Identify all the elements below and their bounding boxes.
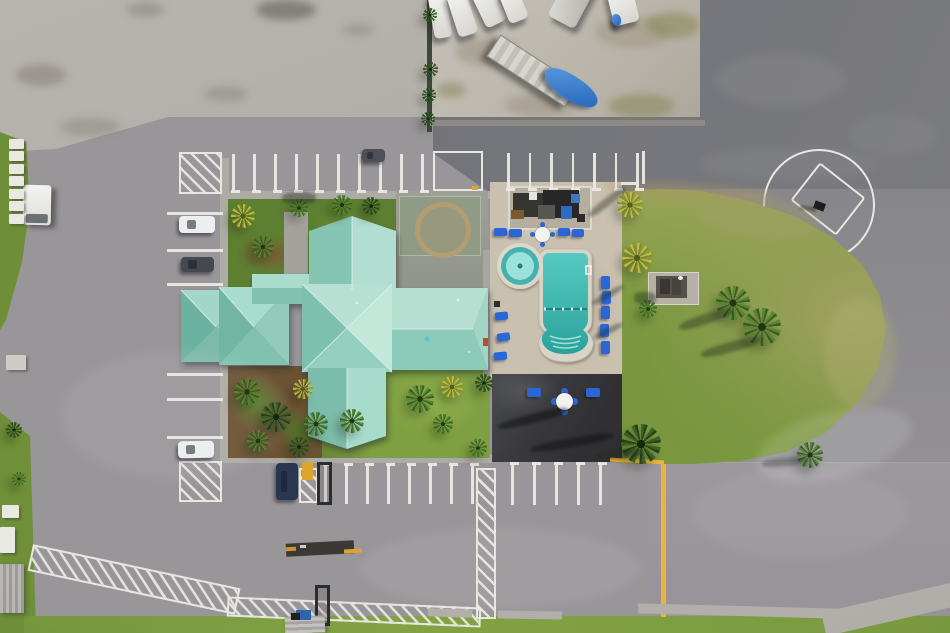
parking-line xyxy=(167,283,223,286)
palm-tree xyxy=(289,437,309,457)
palm-tree xyxy=(617,192,643,218)
parking-line xyxy=(636,153,639,190)
pavement-stain xyxy=(16,64,66,86)
parking-line xyxy=(533,463,536,505)
palm-tree xyxy=(433,414,453,434)
utility-box xyxy=(9,214,24,224)
utility-box xyxy=(9,151,24,161)
parking-line xyxy=(450,464,453,504)
stall-end-mark xyxy=(336,190,345,193)
pavement-stain xyxy=(342,24,374,36)
stall-end-mark xyxy=(399,190,408,193)
parking-line xyxy=(316,154,319,192)
white-line-marking xyxy=(642,151,645,184)
tree-shadow xyxy=(282,192,316,204)
trench-debris xyxy=(300,545,306,548)
stall-end-mark xyxy=(315,190,324,193)
stall-end-mark xyxy=(635,188,644,191)
roof-facet xyxy=(181,290,251,327)
parking-line xyxy=(511,463,514,505)
stall-end-mark xyxy=(252,190,261,193)
shrub xyxy=(12,472,26,486)
sidewalk-segment xyxy=(498,610,562,619)
parking-line xyxy=(615,153,618,190)
pavement-stain xyxy=(126,2,164,17)
palm-tree xyxy=(441,376,463,398)
roof-facet xyxy=(392,288,488,329)
hedge xyxy=(423,62,438,77)
palm-tree xyxy=(261,402,291,432)
palm-tree xyxy=(231,204,255,228)
monument-shadow xyxy=(634,292,656,304)
pool-equipment xyxy=(511,210,524,219)
parking-line xyxy=(429,464,432,504)
utility-box xyxy=(2,505,19,518)
monument-stone xyxy=(672,278,681,295)
parking-line xyxy=(577,463,580,505)
stall-end-mark xyxy=(365,463,374,466)
parking-line xyxy=(408,464,411,504)
pavement-wear xyxy=(60,350,290,480)
monument-plaque xyxy=(678,276,683,280)
roof-facet xyxy=(302,284,347,372)
parking-line xyxy=(337,154,340,192)
parking-line xyxy=(295,154,298,192)
utility-box xyxy=(9,176,24,186)
tree-shadow xyxy=(256,0,316,20)
walkway-east xyxy=(483,250,490,376)
palm-tree xyxy=(332,195,352,215)
rooftop-vent xyxy=(356,302,358,304)
lounge-chair xyxy=(558,228,570,236)
reserved-box-marking xyxy=(433,151,483,191)
asphalt-patch xyxy=(850,114,938,156)
palm-tree xyxy=(622,243,652,273)
parking-line xyxy=(572,153,575,190)
stall-end-mark xyxy=(506,188,515,191)
parking-line xyxy=(232,154,235,192)
aerial-photo xyxy=(0,0,950,633)
pool-equipment xyxy=(577,214,585,222)
parking-line xyxy=(599,463,602,505)
stall-end-mark xyxy=(420,190,429,193)
stall-end-mark xyxy=(386,463,395,466)
hedge xyxy=(421,112,435,126)
parking-line xyxy=(529,153,532,190)
stall-end-mark xyxy=(407,463,416,466)
utility-box xyxy=(9,139,24,149)
car xyxy=(181,257,214,272)
lounge-chair xyxy=(601,341,610,354)
trash-can xyxy=(494,301,500,307)
roof-facet xyxy=(252,288,316,304)
palm-tree xyxy=(469,439,487,457)
stall-end-mark xyxy=(449,463,458,466)
parking-line xyxy=(167,436,223,439)
yellow-cart xyxy=(302,462,313,480)
monument-stone xyxy=(660,279,670,294)
stall-end-mark xyxy=(344,463,353,466)
trench-yellow-mark xyxy=(344,549,362,554)
grass-strip-west xyxy=(0,130,34,342)
hedge xyxy=(423,8,437,22)
parking-line xyxy=(471,464,474,504)
stall-end-mark xyxy=(576,462,585,465)
stall-end-mark xyxy=(554,462,563,465)
palm-tree xyxy=(475,374,493,392)
pavement-stain xyxy=(60,118,120,136)
palm-tree xyxy=(797,442,823,468)
dry-grass-patch xyxy=(824,296,896,408)
grass-tuft xyxy=(646,12,700,38)
pavement-stain xyxy=(204,86,248,102)
parking-line xyxy=(593,153,596,190)
utility-box xyxy=(9,189,24,199)
patio-table xyxy=(535,227,550,242)
utility-box xyxy=(9,164,24,174)
rooftop-vent xyxy=(468,351,470,353)
car xyxy=(276,463,298,500)
grass-tuft xyxy=(436,82,466,98)
no-parking-hatch xyxy=(179,152,222,194)
utility-box xyxy=(6,355,26,370)
pool-equipment xyxy=(538,205,555,219)
gate-frame xyxy=(317,462,332,505)
stall-end-mark xyxy=(470,463,479,466)
shrub xyxy=(6,422,22,438)
palm-tree xyxy=(247,430,269,452)
lounge-chair xyxy=(572,229,584,237)
stall-end-mark xyxy=(510,462,519,465)
trench-yellow-mark xyxy=(286,547,296,552)
parking-line xyxy=(366,464,369,504)
parking-line xyxy=(550,153,553,190)
pavement-wear xyxy=(360,528,640,608)
roof-facet xyxy=(392,329,488,370)
palm-tree xyxy=(234,379,260,405)
utility-box xyxy=(9,201,24,211)
yellow-mark xyxy=(472,186,478,190)
walkway-hatch xyxy=(476,468,496,619)
palm-tree xyxy=(340,409,364,433)
palm-tree xyxy=(293,379,313,399)
no-parking-hatch xyxy=(179,461,222,502)
pool-equipment xyxy=(529,192,537,200)
parking-line xyxy=(358,154,361,192)
stall-end-mark xyxy=(598,462,607,465)
parking-line xyxy=(167,398,223,401)
parking-line xyxy=(387,464,390,504)
parking-line xyxy=(167,212,223,215)
no-parking-hatch xyxy=(28,544,241,614)
rooftop-vent xyxy=(457,299,459,301)
lounge-chair xyxy=(494,228,507,236)
pavement-wear xyxy=(690,468,910,560)
car xyxy=(362,149,385,162)
roof-facet xyxy=(302,284,392,328)
car xyxy=(179,216,215,233)
parking-line xyxy=(400,154,403,192)
lounge-chair xyxy=(586,388,600,397)
stall-end-mark xyxy=(378,190,387,193)
lounge-chair xyxy=(495,311,509,320)
shed-shadow xyxy=(291,613,300,620)
palm-tree xyxy=(406,385,434,413)
car xyxy=(178,441,214,459)
pool-equipment xyxy=(561,206,572,219)
yellow-line xyxy=(661,464,666,617)
lounge-chair xyxy=(509,229,522,237)
stall-end-mark xyxy=(592,188,601,191)
utility-box xyxy=(0,527,15,553)
parking-line xyxy=(167,249,223,252)
stall-end-mark xyxy=(357,190,366,193)
pad-circle-marking xyxy=(415,202,471,258)
white-dash-marking xyxy=(621,182,636,185)
garden-walkway xyxy=(284,212,308,290)
parking-line xyxy=(345,464,348,504)
shed-roof xyxy=(0,564,24,613)
lounge-chair xyxy=(494,351,508,360)
roof-facet xyxy=(347,284,392,372)
rooftop-vent xyxy=(425,337,430,342)
stall-end-mark xyxy=(428,463,437,466)
palm-tree xyxy=(362,197,380,215)
parking-line xyxy=(421,154,424,192)
hedge xyxy=(422,88,436,102)
grass-tuft xyxy=(608,94,674,118)
pool-equipment xyxy=(571,194,580,203)
lounge-chair xyxy=(601,306,610,319)
stall-end-mark xyxy=(532,462,541,465)
stall-end-mark xyxy=(231,190,240,193)
parking-line xyxy=(274,154,277,192)
palm-tree xyxy=(252,236,274,258)
parking-line xyxy=(555,463,558,505)
storage-curb xyxy=(430,120,705,126)
red-cooler xyxy=(483,338,488,346)
parking-line xyxy=(507,153,510,190)
stall-end-mark xyxy=(273,190,282,193)
box-truck xyxy=(23,185,52,225)
asphalt-patch xyxy=(716,54,846,106)
roof-facet xyxy=(219,287,289,327)
sidewalk-segment xyxy=(428,608,472,618)
parking-line xyxy=(253,154,256,192)
lounge-chair xyxy=(527,388,541,397)
palm-tree xyxy=(304,412,328,436)
parking-line xyxy=(167,373,223,376)
stall-end-mark xyxy=(528,188,537,191)
asphalt-patch xyxy=(700,148,880,180)
lounge-chair xyxy=(601,276,610,289)
roof-facet xyxy=(254,287,289,365)
